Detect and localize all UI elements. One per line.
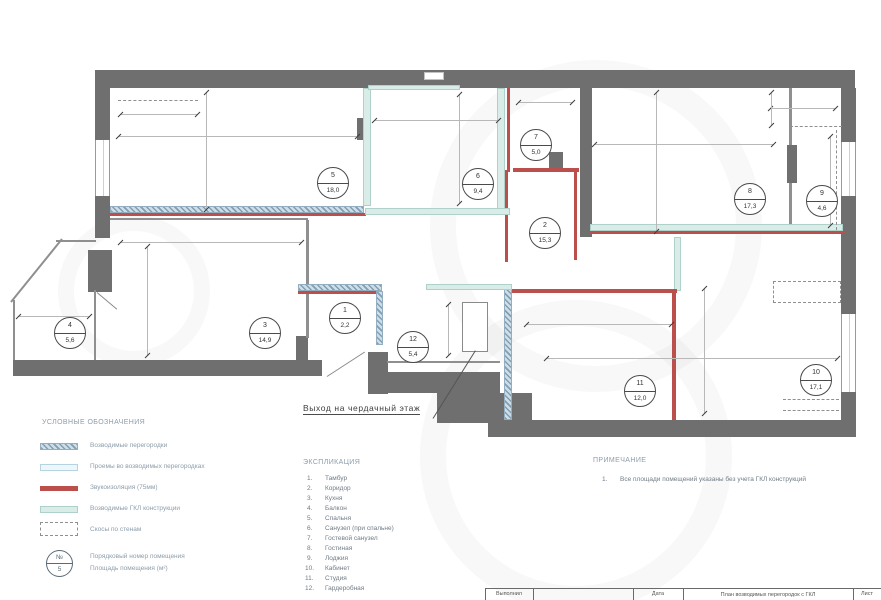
wall: [95, 196, 110, 238]
explication-item-name: Студия: [325, 575, 347, 582]
explication-item-num: 2.: [307, 485, 312, 492]
explication-item-num: 1.: [307, 475, 312, 482]
wall: [296, 336, 308, 362]
floor-plan-photo: 1 2,2 2 15,3 3 14,9 4 5,6 5 18,0 6 9,4 7…: [0, 0, 881, 600]
soundproofing-line: [110, 213, 366, 216]
note-item-text: Все площади помещений указаны без учета …: [620, 476, 806, 483]
partition-hatch: [298, 284, 382, 291]
room-badge-9: 9 4,6: [806, 185, 838, 217]
titleblock-sheet-label: Лист: [854, 591, 880, 597]
partition-hatch: [376, 291, 383, 345]
explication-item-num: 3.: [307, 495, 312, 502]
dimension-line: [704, 288, 705, 414]
explication-item-name: Санузел (при спальне): [325, 525, 394, 532]
wall: [437, 393, 532, 423]
room-area: 9,4: [463, 185, 493, 199]
room-badge-4: 4 5,6: [54, 317, 86, 349]
room-number: 9: [807, 186, 837, 202]
explication-item-name: Балкон: [325, 505, 347, 512]
door-leaf: [327, 352, 365, 377]
dimension-line: [770, 108, 836, 109]
soundproofing-line: [513, 168, 579, 172]
legend-item-label: Возводимые ГКЛ конструкции: [90, 505, 180, 512]
room-number: 1: [330, 303, 360, 319]
wall-thin: [789, 88, 792, 145]
legend-room-badge-symbol: № 5: [46, 550, 73, 577]
room-area: 5,0: [521, 146, 551, 160]
gkl-line: [363, 88, 371, 206]
room-number: 11: [625, 376, 655, 392]
explication-item-num: 9.: [307, 555, 312, 562]
room-number: 4: [55, 318, 85, 334]
wall: [488, 420, 856, 437]
dimension-line: [374, 120, 499, 121]
room-number: 5: [318, 168, 348, 184]
room-area: 5,6: [55, 334, 85, 348]
dimension-line: [594, 144, 774, 145]
room-badge-10: 10 17,1: [800, 364, 832, 396]
soundproofing-line: [574, 172, 577, 260]
room-badge-3: 3 14,9: [249, 317, 281, 349]
wall-notch: [424, 72, 444, 80]
explication-item-name: Тамбур: [325, 475, 347, 482]
soundproofing-line: [505, 170, 508, 262]
room-badge-5: 5 18,0: [317, 167, 349, 199]
dimension-line: [656, 92, 657, 232]
wall-thin: [94, 290, 96, 360]
dimension-line: [448, 304, 449, 356]
gkl-line: [674, 237, 681, 291]
legend-badge-area: 5: [47, 564, 72, 576]
wall: [549, 152, 563, 168]
legend-badge-label-2: Площадь помещения (м²): [90, 565, 168, 572]
note-item-num: 1.: [602, 476, 607, 483]
note-title: ПРИМЕЧАНИЕ: [593, 457, 646, 464]
titleblock-border: [683, 588, 684, 600]
room-number: 12: [398, 332, 428, 348]
legend-badge-number: №: [47, 551, 72, 564]
gkl-line: [497, 88, 505, 214]
explication-item-num: 8.: [307, 545, 312, 552]
legend-item-label: Проемы во возводимых перегородках: [90, 463, 205, 470]
room-area: 2,2: [330, 319, 360, 333]
soundproofing-line: [672, 291, 676, 420]
explication-item-name: Гостевой санузел: [325, 535, 378, 542]
room-badge-1: 1 2,2: [329, 302, 361, 334]
gkl-line: [365, 208, 510, 215]
dimension-line: [18, 316, 90, 317]
legend-swatch-opening: [40, 464, 78, 471]
room-area: 5,4: [398, 348, 428, 362]
wall: [580, 88, 592, 237]
wall-thin: [110, 218, 308, 220]
explication-item-num: 7.: [307, 535, 312, 542]
room-badge-11: 11 12,0: [624, 375, 656, 407]
window: [841, 142, 856, 196]
dashed-bevel-line: [790, 126, 842, 127]
attic-ladder: [462, 302, 488, 352]
legend-swatch-gkl: [40, 506, 78, 513]
dashed-bevel-line: [783, 399, 839, 400]
wall: [841, 196, 856, 314]
explication-item-num: 12.: [305, 585, 314, 592]
explication-item-name: Кабинет: [325, 565, 350, 572]
wall: [13, 360, 322, 376]
wall: [841, 88, 856, 142]
explication-item-num: 5.: [307, 515, 312, 522]
wall-thin: [13, 300, 15, 360]
wall: [88, 250, 112, 292]
dimension-line: [518, 102, 573, 103]
explication-item-name: Спальня: [325, 515, 351, 522]
legend-badge-label-1: Порядковый номер помещения: [90, 553, 185, 560]
dimension-line: [147, 246, 148, 356]
room-number: 8: [735, 184, 765, 200]
room-number: 3: [250, 318, 280, 334]
explication-item-name: Гостиная: [325, 545, 352, 552]
room-area: 4,6: [807, 202, 837, 216]
room-area: 18,0: [318, 184, 348, 198]
soundproofing-line: [298, 291, 382, 294]
wall: [368, 352, 388, 394]
exit-to-attic-label: Выход на чердачный этаж: [303, 403, 420, 415]
wall: [387, 372, 500, 393]
room-number: 10: [801, 365, 831, 381]
wall: [95, 70, 855, 88]
soundproofing-line: [590, 231, 845, 234]
titleblock-author-label: Выполнил: [486, 591, 532, 597]
legend-swatch-soundproofing: [40, 486, 78, 491]
room-area: 17,3: [735, 200, 765, 214]
room-number: 2: [530, 218, 560, 234]
gkl-line: [368, 85, 460, 90]
dimension-line: [206, 92, 207, 210]
explication-item-num: 11.: [305, 575, 314, 582]
wall: [787, 145, 797, 183]
wall: [95, 88, 110, 140]
dashed-bevel-line: [118, 100, 198, 101]
explication-item-name: Лоджия: [325, 555, 348, 562]
dimension-line: [459, 94, 460, 204]
legend-item-label: Звукоизоляция (75мм): [90, 484, 158, 491]
gkl-line: [590, 224, 843, 231]
room-badge-7: 7 5,0: [520, 129, 552, 161]
room-area: 17,1: [801, 381, 831, 395]
partition-hatch: [110, 206, 364, 213]
wall-bevel-diagonal: [10, 238, 63, 302]
room-badge-8: 8 17,3: [734, 183, 766, 215]
dashed-bevel-line: [783, 410, 839, 411]
soundproofing-line: [507, 88, 510, 172]
window: [95, 140, 110, 196]
legend-item-label: Скосы по стенам: [90, 526, 141, 533]
room-area: 15,3: [530, 234, 560, 248]
explication-title: ЭКСПЛИКАЦИЯ: [303, 459, 360, 466]
legend-swatch-partition: [40, 443, 78, 450]
dimension-line: [120, 242, 302, 243]
gkl-line: [426, 284, 512, 290]
dimension-line: [118, 136, 358, 137]
titleblock-border: [533, 588, 534, 600]
explication-item-num: 6.: [307, 525, 312, 532]
titleblock-date-label: Дата: [634, 591, 682, 597]
dimension-line: [526, 324, 672, 325]
partition-hatch: [504, 289, 512, 420]
room-area: 14,9: [250, 334, 280, 348]
explication-item-num: 4.: [307, 505, 312, 512]
explication-item-num: 10.: [305, 565, 314, 572]
room-badge-2: 2 15,3: [529, 217, 561, 249]
legend-item-label: Возводимые перегородки: [90, 442, 167, 449]
dimension-line: [771, 92, 772, 126]
wall: [841, 392, 856, 422]
window: [841, 314, 856, 392]
soundproofing-line: [510, 289, 677, 293]
legend-swatch-bevel: [40, 522, 78, 536]
titleblock-drawing-title: План возводимых перегородок с ГКЛ: [685, 592, 851, 598]
dimension-line: [120, 114, 198, 115]
dimension-line: [546, 358, 838, 359]
explication-item-name: Коридор: [325, 485, 351, 492]
explication-item-name: Кухня: [325, 495, 342, 502]
room-number: 7: [521, 130, 551, 146]
legend-title: УСЛОВНЫЕ ОБОЗНАЧЕНИЯ: [42, 419, 145, 426]
room-badge-12: 12 5,4: [397, 331, 429, 363]
explication-item-name: Гардеробная: [325, 585, 364, 592]
room-badge-6: 6 9,4: [462, 168, 494, 200]
dashed-bevel-box: [773, 281, 841, 303]
room-area: 12,0: [625, 392, 655, 406]
wall-thin: [306, 220, 309, 338]
room-number: 6: [463, 169, 493, 185]
